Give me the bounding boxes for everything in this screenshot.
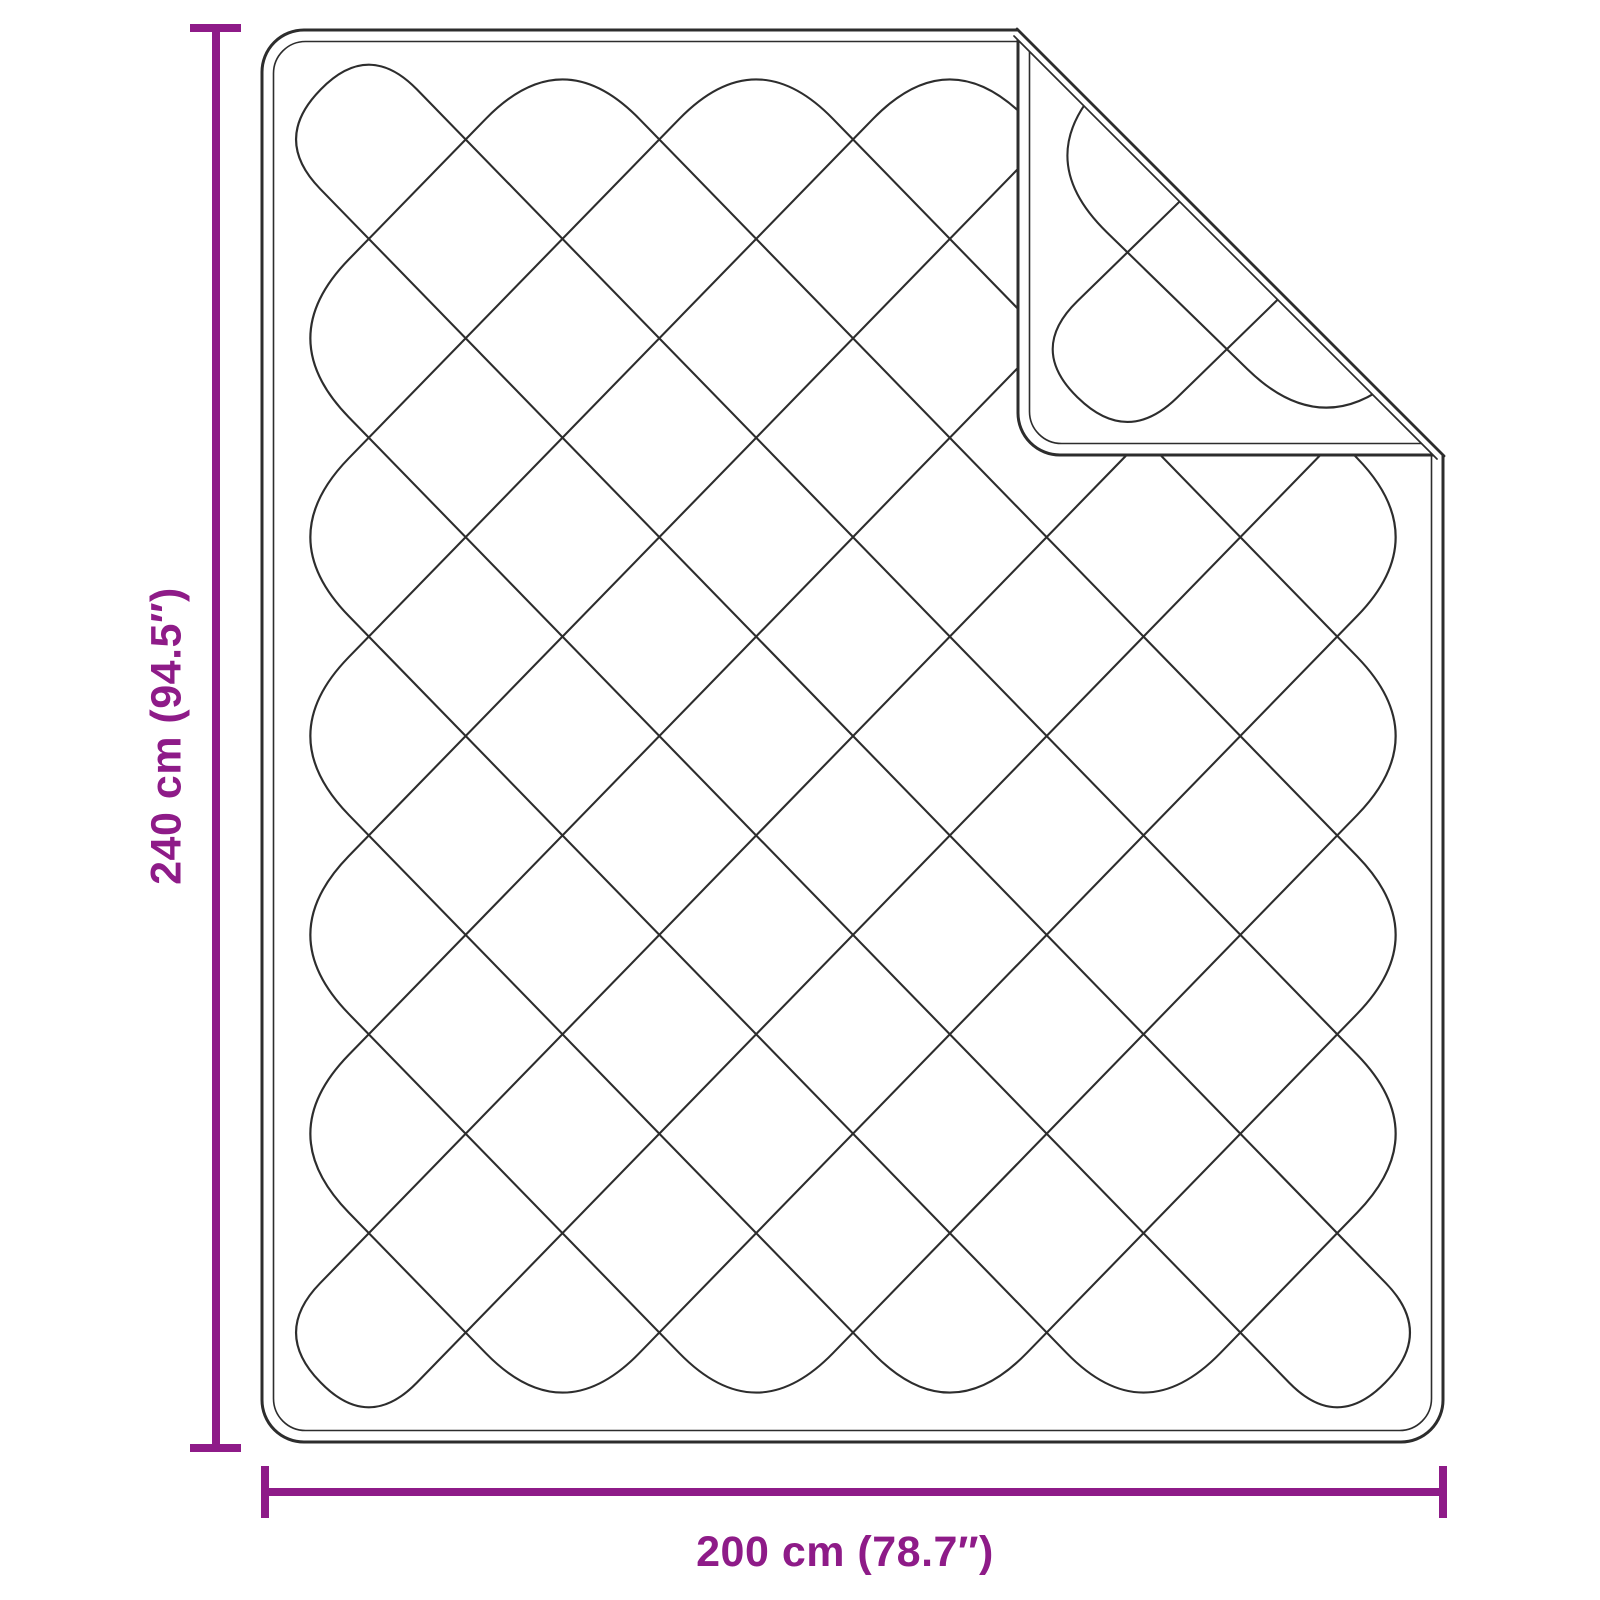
height-dimension-line <box>190 28 241 1448</box>
width-dimension-line <box>265 1466 1443 1518</box>
height-dimension-label: 240 cm (94.5″) <box>146 587 189 885</box>
blanket-drawing <box>0 0 1600 1600</box>
width-dimension-label: 200 cm (78.7″) <box>696 1531 994 1574</box>
dimension-diagram: 240 cm (94.5″) 200 cm (78.7″) <box>0 0 1600 1600</box>
blanket-body <box>262 30 1443 1442</box>
